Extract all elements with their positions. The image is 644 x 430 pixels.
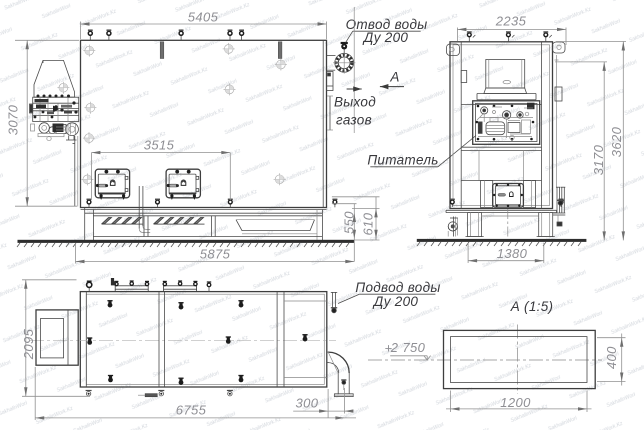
svg-text:5405: 5405: [188, 10, 219, 25]
svg-text:3070: 3070: [6, 104, 21, 135]
svg-text:1200: 1200: [500, 395, 531, 410]
svg-text:Питатель: Питатель: [367, 152, 438, 167]
svg-text:400: 400: [604, 346, 619, 369]
svg-text:А: А: [389, 70, 399, 85]
svg-text:1380: 1380: [497, 246, 528, 261]
svg-text:+: +: [385, 341, 393, 356]
svg-text:А (1:5): А (1:5): [510, 299, 554, 314]
svg-text:Ду 200: Ду 200: [372, 294, 419, 309]
svg-text:2235: 2235: [495, 14, 527, 29]
svg-text:газов: газов: [336, 113, 372, 128]
svg-text:Подвод воды: Подвод воды: [355, 280, 440, 295]
svg-text:300: 300: [296, 396, 319, 411]
svg-text:2095: 2095: [21, 328, 36, 360]
svg-text:3620: 3620: [609, 126, 624, 157]
svg-text:610: 610: [360, 212, 375, 235]
svg-text:5875: 5875: [200, 247, 231, 262]
svg-text:6755: 6755: [176, 403, 207, 418]
svg-text:550: 550: [342, 211, 357, 234]
svg-text:Выход: Выход: [334, 95, 376, 110]
svg-text:3515: 3515: [144, 138, 175, 153]
svg-text:2 750: 2 750: [390, 340, 426, 355]
svg-text:Ду 200: Ду 200: [362, 30, 409, 45]
svg-text:3170: 3170: [591, 144, 606, 175]
